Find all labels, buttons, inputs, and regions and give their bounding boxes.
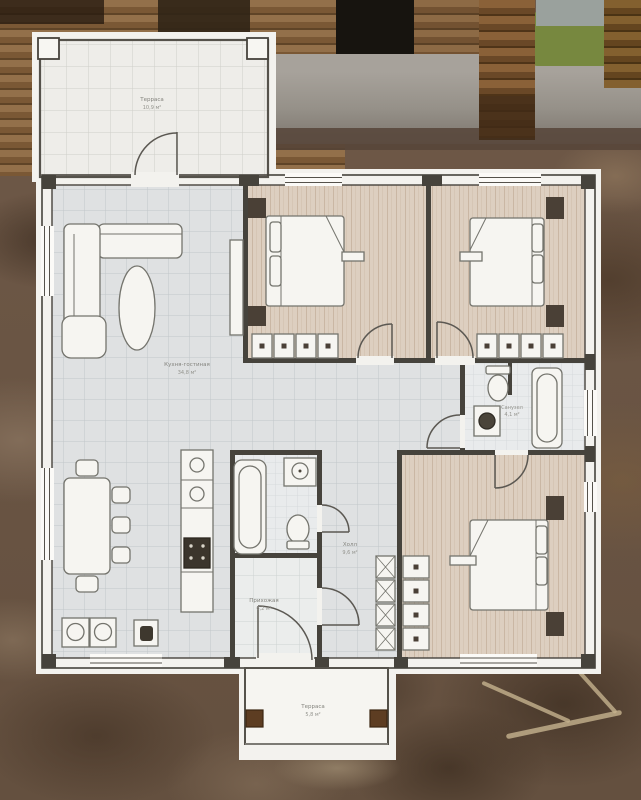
side-table <box>342 252 364 261</box>
porch-post <box>370 710 387 727</box>
nightstand-dark <box>248 198 266 218</box>
nightstand-dark <box>546 496 564 520</box>
nightstand-dark <box>248 306 266 326</box>
entry-area: 6,2 м² <box>256 606 271 612</box>
terrace-post <box>247 38 268 59</box>
sink-1 <box>284 458 316 486</box>
hall-area: 9,6 м² <box>342 550 357 556</box>
living-area: 34,8 м² <box>178 370 197 376</box>
room-hall-band <box>52 363 460 450</box>
window <box>460 654 537 667</box>
boiler <box>140 626 153 641</box>
nightstand-dark <box>546 305 564 327</box>
kitchen-counter <box>181 450 213 612</box>
living-label: Кухня-гостиная <box>164 362 210 368</box>
window <box>479 173 541 186</box>
side-table <box>450 556 476 565</box>
bed-2 <box>470 218 544 306</box>
kitchen-bottom-units <box>62 618 158 647</box>
terrace-post <box>38 38 59 59</box>
room-hall <box>322 450 397 658</box>
window <box>41 226 54 296</box>
window <box>41 468 54 560</box>
hall-label: Холл <box>343 542 358 548</box>
side-table <box>460 252 482 261</box>
nightstand-dark <box>546 612 564 636</box>
window <box>90 654 162 667</box>
terrace-top-label: Терраса <box>139 97 164 103</box>
porch-bottom: Терраса 5,8 м² <box>245 668 388 744</box>
window <box>285 173 342 186</box>
bed-3 <box>470 520 548 610</box>
bed-1 <box>266 216 344 306</box>
room-entry <box>235 558 317 658</box>
bathtub-1 <box>234 460 266 554</box>
terrace-top-area: 10,9 м² <box>143 105 162 111</box>
terrace-top: Терраса 10,9 м² <box>38 38 268 177</box>
toilet-1 <box>287 515 309 549</box>
window <box>584 390 597 436</box>
porch-post <box>246 710 263 727</box>
armchair <box>62 316 106 358</box>
bathroom-area: 4,1 м² <box>504 412 519 418</box>
window <box>584 482 597 512</box>
coffee-table <box>119 266 155 350</box>
bathtub-2 <box>532 368 562 448</box>
bathroom-label: Санузел <box>501 405 523 411</box>
nightstand-dark <box>546 197 564 219</box>
sink-2 <box>474 406 500 436</box>
toilet-2 <box>486 366 510 401</box>
entry-label: Прихожая <box>249 598 278 604</box>
stove <box>184 538 210 568</box>
terrace-bottom-area: 5,8 м² <box>305 712 320 718</box>
floor-plan: Терраса 10,9 м² <box>0 0 641 800</box>
terrace-bottom-label: Терраса <box>300 704 325 710</box>
tv-stand <box>230 240 243 335</box>
